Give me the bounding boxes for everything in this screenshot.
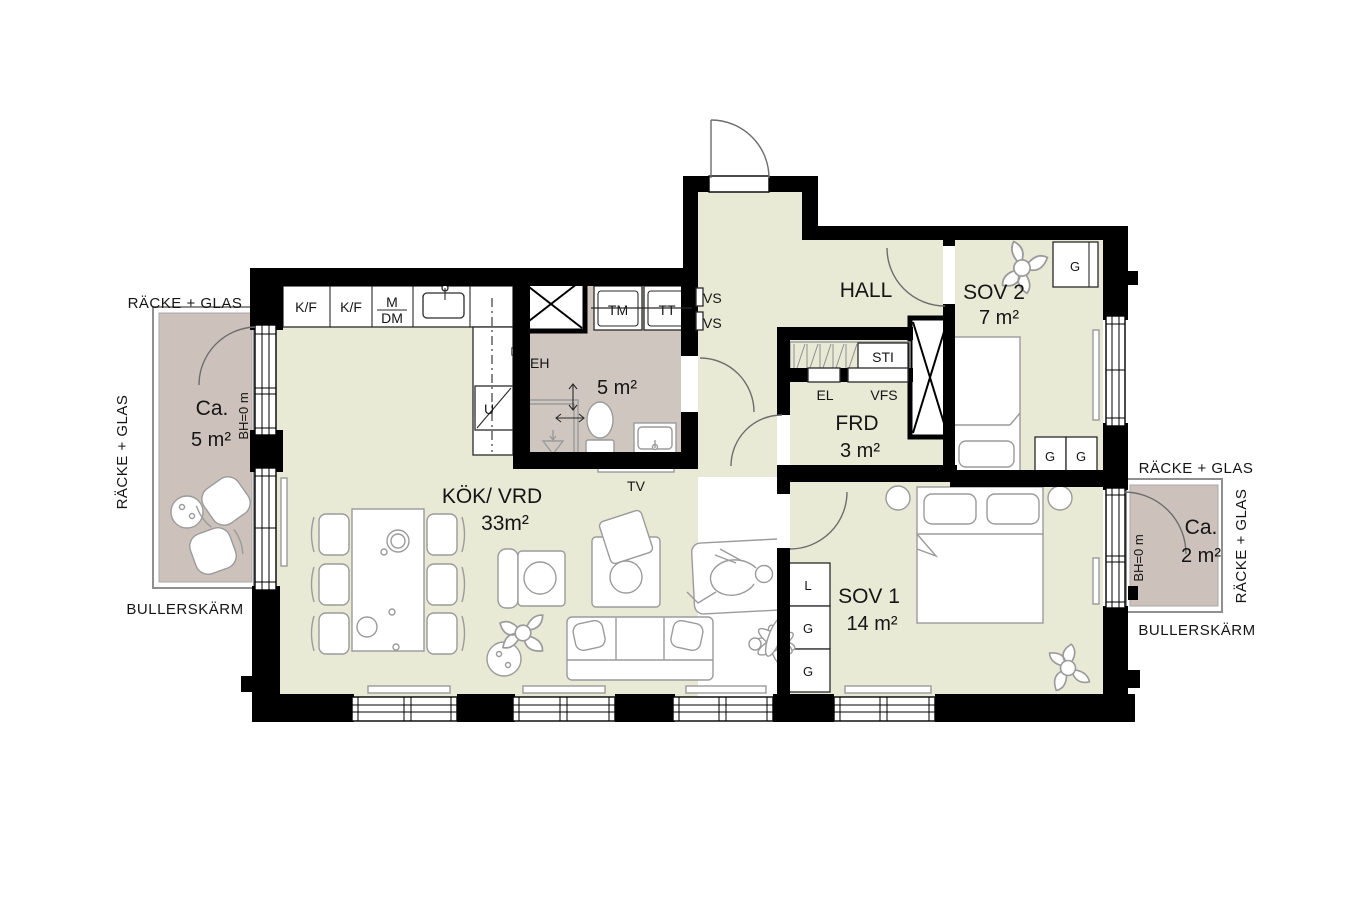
fixture-label-kf1: K/F (295, 299, 317, 315)
room-label-frd: FRD (835, 412, 878, 435)
bathroom-door-opening (681, 356, 698, 412)
window-bottom-4 (834, 697, 935, 721)
nightstand-right (1048, 486, 1072, 510)
lounge-cushion (610, 561, 642, 593)
fixture-label-m: M (386, 294, 398, 310)
balcony-right-ca: Ca. (1185, 516, 1218, 539)
entry-door-opening (709, 176, 769, 192)
vs-shaft-upper (696, 288, 703, 306)
window-left (255, 468, 276, 590)
fixture-label-vs-upper: VS (703, 290, 722, 306)
window-sill (1093, 558, 1099, 604)
balcony-right-area: 2 m² (1181, 545, 1221, 567)
room-label-sov2: SOV 2 (963, 281, 1025, 304)
room-label-kok-vrd: KÖK/ VRD (442, 485, 542, 508)
room-label-sov1: SOV 1 (838, 585, 900, 608)
sofa-pillow (572, 619, 607, 652)
room-label-hall: HALL (840, 279, 893, 302)
annotation-racke-right-side: RÄCKE + GLAS (1233, 489, 1250, 604)
fixture-label-vfs: VFS (870, 387, 897, 403)
radiator (281, 478, 287, 566)
radiator (845, 686, 931, 693)
fixture-label-tt: TT (658, 302, 676, 318)
pillow (959, 441, 1014, 467)
entry-door-swing (711, 120, 769, 178)
fixture-label-eh: EH (530, 355, 549, 371)
wardrobe-label-l: L (804, 578, 811, 593)
annotation-bullerskarm-left: BULLERSKÄRM (126, 601, 243, 618)
dining-table (352, 509, 424, 651)
sov2-door-opening (943, 246, 955, 304)
kitchen-sink (423, 293, 464, 318)
floor-plan-page: KÖK/ VRD 33m² 5 m² HALL SOV 2 7 m² FRD 3… (0, 0, 1366, 911)
radiator (686, 686, 766, 693)
room-area-frd: 3 m² (840, 440, 880, 462)
room-area-sov2: 7 m² (979, 307, 1019, 329)
window-bottom-2 (513, 697, 615, 721)
fixture-label-el: EL (816, 387, 833, 403)
fixture-label-u: U (484, 401, 494, 417)
balcony-door-left (255, 325, 276, 435)
person-head (756, 566, 773, 583)
window-sill-sov2 (1093, 330, 1099, 420)
vfs-cabinet (848, 368, 908, 382)
balcony-left-ca: Ca. (196, 397, 229, 420)
floor-plan: KÖK/ VRD 33m² 5 m² HALL SOV 2 7 m² FRD 3… (0, 0, 1366, 911)
annotation-racke-left-side: RÄCKE + GLAS (114, 395, 131, 510)
balcony-door-right (1106, 488, 1125, 608)
armchair-cushion (524, 562, 556, 594)
fixture-label-tv: TV (627, 478, 646, 494)
fixture-label-sti: STI (872, 349, 894, 365)
wardrobe-label-g: G (1070, 259, 1080, 274)
fixture-label-vs-lower: VS (703, 315, 722, 331)
radiator (523, 686, 605, 693)
nightstand-left (886, 486, 910, 510)
sofa-pillow (669, 619, 704, 652)
balcony-left-area: 5 m² (191, 429, 231, 451)
armchair-back (498, 549, 518, 608)
pillow (924, 494, 976, 524)
room-area-sov1: 14 m² (846, 613, 897, 635)
room-area-kok-vrd: 33m² (481, 512, 529, 535)
toilet (587, 402, 613, 438)
fixture-label-tm: TM (608, 302, 628, 318)
wardrobe-label-g: G (1076, 449, 1086, 464)
radiator (368, 686, 450, 693)
annotation-bh-left: BH=0 m (236, 392, 251, 439)
annotation-bh-right: BH=0 m (1131, 534, 1146, 581)
sov1-door-opening (777, 494, 790, 548)
annotation-bullerskarm-right: BULLERSKÄRM (1138, 622, 1255, 639)
wardrobe-label-g: G (1045, 449, 1055, 464)
room-area-bathroom: 5 m² (597, 377, 637, 399)
el-cabinet (808, 368, 840, 382)
wardrobe-label-g: G (803, 621, 813, 636)
frd-door-opening (777, 415, 790, 465)
vs-shaft-lower (696, 312, 703, 330)
fixture-label-kf2: K/F (340, 299, 362, 315)
window-sov2 (1106, 316, 1125, 426)
annotation-racke-right-top: RÄCKE + GLAS (1139, 460, 1254, 477)
chaise-with-person (687, 539, 790, 615)
fixture-label-dm: DM (381, 310, 403, 326)
pillow (987, 494, 1039, 524)
annotation-racke-left-top: RÄCKE + GLAS (128, 295, 243, 312)
window-bottom-3 (673, 697, 773, 721)
wardrobe-label-g: G (803, 664, 813, 679)
